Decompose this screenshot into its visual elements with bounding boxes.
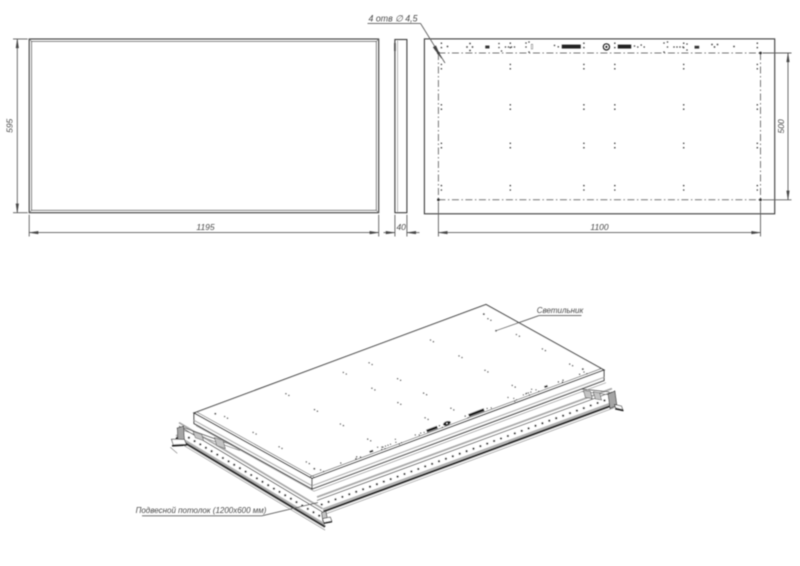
svg-text:Светильник: Светильник [537,306,585,315]
svg-text:40: 40 [396,222,406,232]
svg-text:1100: 1100 [590,222,609,232]
svg-text:4 отв ∅ 4,5: 4 отв ∅ 4,5 [369,14,418,24]
svg-text:500: 500 [776,119,786,133]
svg-text:595: 595 [5,118,15,132]
svg-text:1195: 1195 [196,222,215,232]
svg-text:Подвесной потолок (1200х600 мм: Подвесной потолок (1200х600 мм) [136,506,267,515]
